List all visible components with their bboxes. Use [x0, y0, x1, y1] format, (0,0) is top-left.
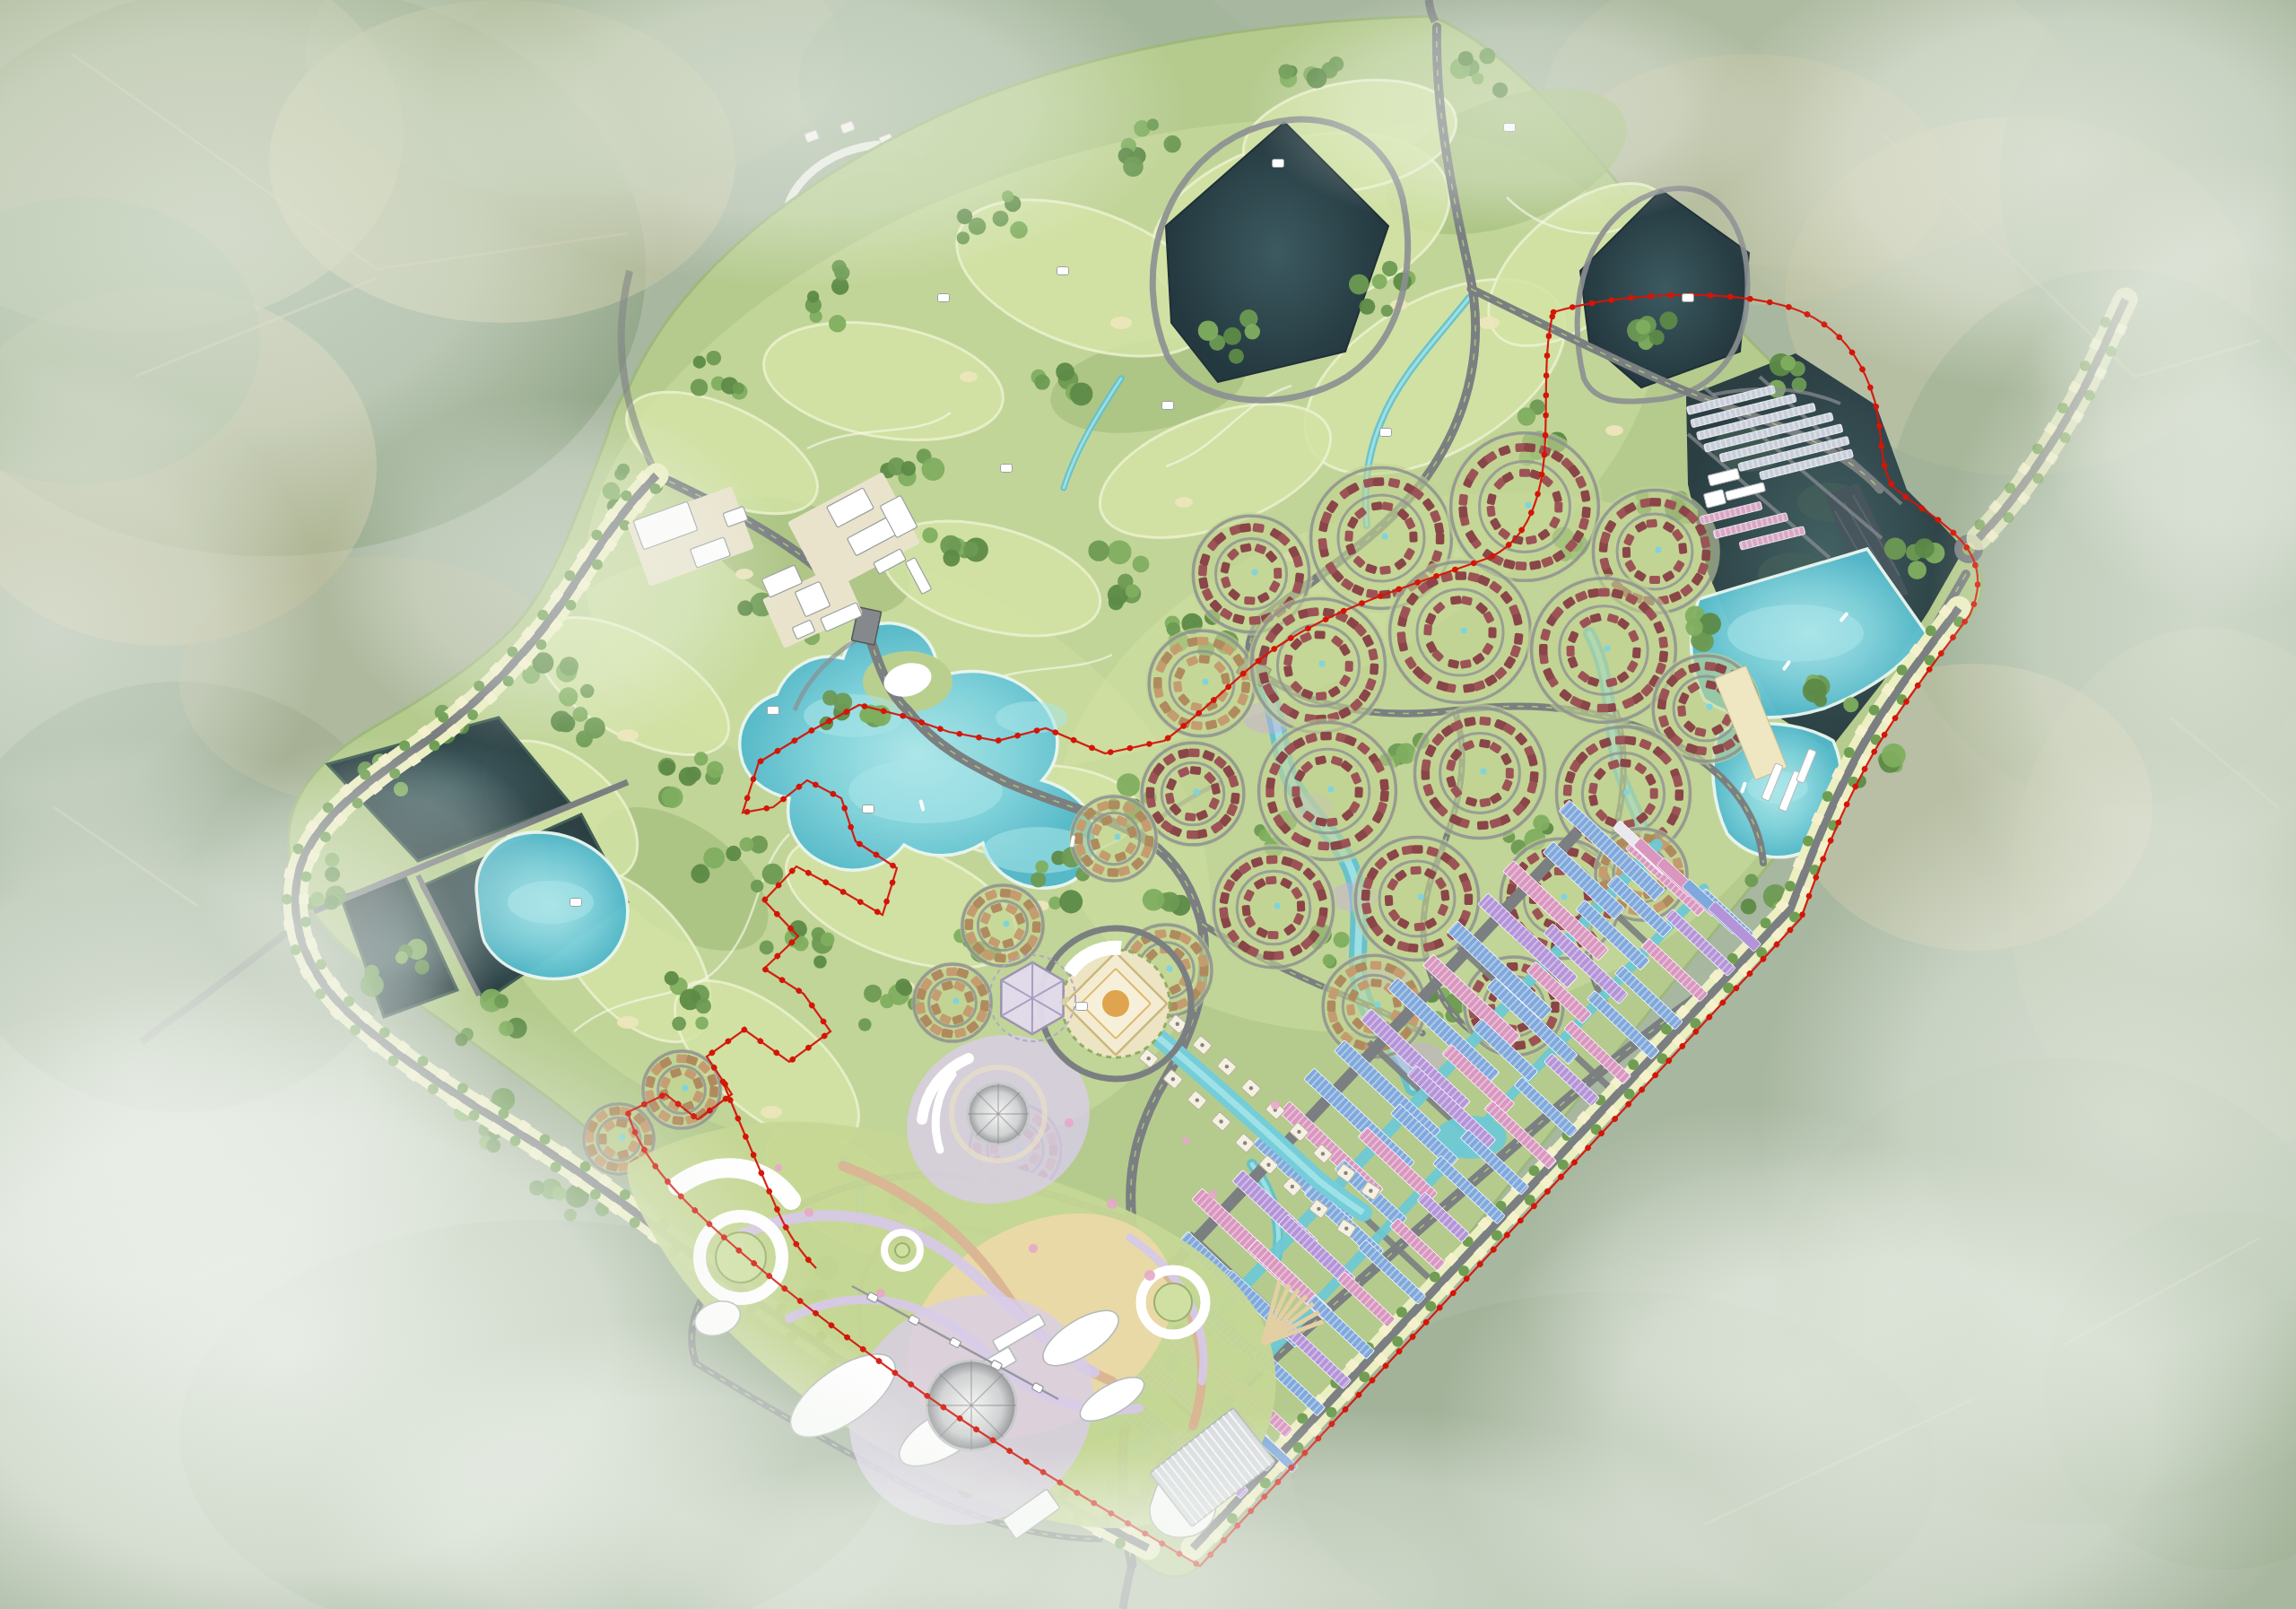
- screenshot-stage: [0, 0, 2296, 1609]
- master-plan-map: [0, 0, 2296, 1609]
